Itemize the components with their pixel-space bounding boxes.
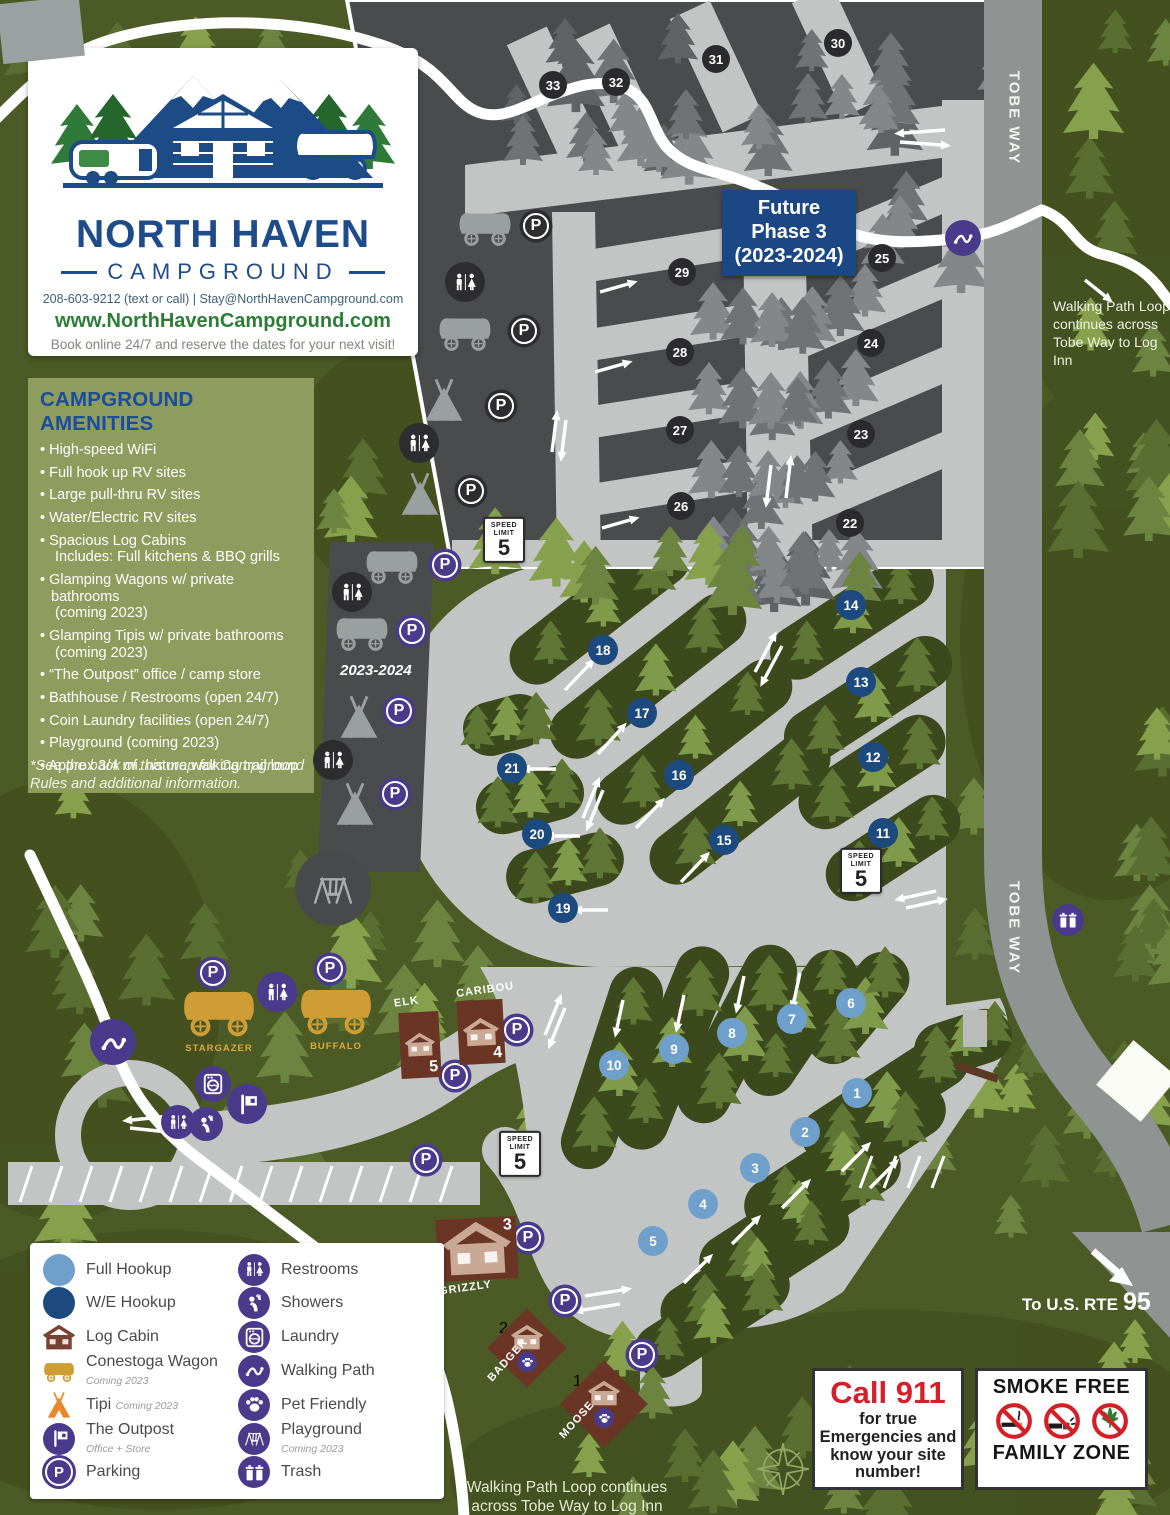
- legend-label: Log Cabin: [86, 1328, 159, 1345]
- site-marker-32: 32: [602, 68, 630, 96]
- parking-icon: P: [504, 1017, 530, 1043]
- site-marker-10: 10: [599, 1050, 629, 1080]
- legend-item-tipi: Tipi Coming 2023: [42, 1388, 237, 1421]
- legend-label: Parking: [86, 1463, 140, 1480]
- pet-friendly-icon: [594, 1408, 614, 1428]
- site-marker-27: 27: [666, 416, 694, 444]
- site-marker-5: 5: [638, 1226, 668, 1256]
- map-legend: Full Hookup W/E Hookup Log Cabin Conesto…: [30, 1243, 444, 1499]
- legend-sub: Coming 2023: [86, 1375, 148, 1387]
- amenity-item: • Spacious Log CabinsIncludes: Full kitc…: [40, 533, 302, 566]
- emergency-notice: Call 911 for true Emergencies and know y…: [812, 1368, 964, 1490]
- site-marker-24: 24: [857, 329, 885, 357]
- future-phase-label: Future Phase 3 (2023-2024): [722, 190, 856, 276]
- legend-item-w-e-hookup: W/E Hookup: [42, 1287, 237, 1320]
- site-marker-1: 1: [842, 1078, 872, 1108]
- speed-limit-sign: SPEEDLIMIT5: [840, 848, 882, 894]
- site-marker-2: 2: [790, 1117, 820, 1147]
- outpost-building: [0, 0, 85, 64]
- laundry-icon: [195, 1066, 231, 1102]
- legend-label: W/E Hookup: [86, 1294, 176, 1311]
- site-marker-18: 18: [588, 635, 618, 665]
- site-marker-4: 4: [688, 1189, 718, 1219]
- site-marker-20: 20: [522, 819, 552, 849]
- cabin-number: 3: [502, 1216, 512, 1234]
- site-marker-7: 7: [777, 1004, 807, 1034]
- call-911-body: for true Emergencies and know your site …: [815, 1411, 961, 1482]
- legend-sub: Coming 2023: [281, 1443, 343, 1455]
- trash-icon: [238, 1456, 270, 1488]
- legend-label: Conestoga Wagon: [86, 1353, 218, 1370]
- site-marker-13: 13: [846, 667, 876, 697]
- parking-icon: P: [399, 618, 425, 644]
- speed-limit-sign: SPEEDLIMIT5: [483, 517, 525, 563]
- squig-glyph: [952, 227, 974, 249]
- legend-item-conestoga-wagon: Conestoga WagonComing 2023: [42, 1354, 237, 1387]
- site-marker-9: 9: [659, 1034, 689, 1064]
- we-hookup-icon: [43, 1287, 75, 1319]
- site-marker-17: 17: [627, 698, 657, 728]
- amenity-item-sub: (coming 2023): [51, 605, 302, 622]
- site-marker-33: 33: [539, 71, 567, 99]
- legend-label: Restrooms: [281, 1261, 358, 1278]
- wagon-label: BUFFALO: [292, 1041, 380, 1052]
- legend-label: Playground: [281, 1421, 362, 1438]
- compass-rose-icon: [752, 1438, 814, 1500]
- legend-item-pet-friendly: Pet Friendly: [237, 1388, 432, 1421]
- site-marker-29: 29: [668, 258, 696, 286]
- showers-icon: [189, 1107, 223, 1141]
- amenity-item: • Glamping Tipis w/ private bathrooms(co…: [40, 628, 302, 661]
- paw-glyph: [598, 1412, 611, 1425]
- conestoga-wagon-icon: [42, 1358, 76, 1384]
- no-cigarette-icon: [994, 1401, 1034, 1441]
- legend-column-left: Full Hookup W/E Hookup Log Cabin Conesto…: [42, 1253, 237, 1489]
- website-url: www.NorthHavenCampground.com: [28, 310, 418, 333]
- amenity-item-sub: Includes: Full kitchens & BBQ grills: [51, 549, 302, 566]
- trash-icon: [1052, 904, 1084, 936]
- parking-icon: P: [432, 552, 458, 578]
- amenity-item-sub: (coming 2023): [51, 645, 302, 662]
- wc-glyph: [265, 980, 290, 1005]
- parking-icon: P: [523, 213, 549, 239]
- wc-glyph: [168, 1112, 189, 1133]
- restrooms-icon: [238, 1254, 270, 1286]
- brand-title: NORTH HAVEN: [28, 213, 418, 257]
- log-cabin-icon: [42, 1323, 76, 1352]
- amenities-footnote: *See the back of this map for Campground…: [30, 757, 310, 793]
- site-marker-23: 23: [847, 420, 875, 448]
- campground-map-poster: NORTH HAVEN CAMPGROUND 208-603-9212 (tex…: [0, 0, 1170, 1515]
- site-marker-8: 8: [717, 1018, 747, 1048]
- legend-item-log-cabin: Log Cabin: [42, 1321, 237, 1354]
- amenity-item: • Bathhouse / Restrooms (open 24/7): [40, 690, 302, 707]
- legend-sub: Coming 2023: [116, 1400, 178, 1412]
- full-hookup-icon: [43, 1254, 75, 1286]
- walkpath-icon: [90, 1019, 136, 1065]
- wc-glyph: [407, 431, 432, 456]
- amenity-item: • Coin Laundry facilities (open 24/7): [40, 713, 302, 730]
- route-95-arrow-icon: [1085, 1245, 1145, 1295]
- phase-strip-year-label: 2023-2024: [340, 662, 412, 679]
- legend-label: The Outpost: [86, 1421, 174, 1438]
- legend-item-parking: P Parking: [42, 1456, 237, 1489]
- site-marker-3: 3: [740, 1153, 770, 1183]
- walkpath-icon: [238, 1355, 270, 1387]
- legend-label: Full Hookup: [86, 1261, 171, 1278]
- wagon-icon: [179, 984, 259, 1037]
- paw-icon: [238, 1389, 270, 1421]
- wc-glyph: [321, 748, 346, 773]
- parking-icon: P: [442, 1063, 468, 1089]
- tipi-icon: [45, 1391, 73, 1419]
- legend-item-laundry: Laundry: [237, 1321, 432, 1354]
- parking-icon: P: [488, 393, 514, 419]
- outpost-icon: [43, 1423, 75, 1455]
- booking-tagline: Book online 24/7 and reserve the dates f…: [28, 337, 418, 352]
- site-marker-12: 12: [858, 742, 888, 772]
- speed-limit-sign: SPEEDLIMIT5: [499, 1131, 541, 1177]
- amenity-item: • Water/Electric RV sites: [40, 510, 302, 527]
- legend-item-trash: Trash: [237, 1456, 432, 1489]
- legend-column-right: Restrooms Showers Laundry Walking Path P…: [237, 1253, 432, 1489]
- cabin-icon: [403, 1031, 436, 1058]
- wc-glyph: [340, 580, 365, 605]
- no-vaping-icon: [1042, 1401, 1082, 1441]
- site-marker-21: 21: [497, 753, 527, 783]
- legend-label: Trash: [281, 1463, 321, 1480]
- legend-item-the-outpost: The OutpostOffice + Store: [42, 1422, 237, 1455]
- playground-icon: [238, 1423, 270, 1455]
- site-marker-30: 30: [824, 29, 852, 57]
- parking-icon: P: [382, 781, 408, 807]
- parking-icon: P: [629, 1342, 655, 1368]
- cabin-caribou: 4: [456, 999, 505, 1065]
- site-marker-6: 6: [836, 988, 866, 1018]
- amenity-item: • Large pull-thru RV sites: [40, 487, 302, 504]
- cabin-elk: 5: [398, 1011, 441, 1079]
- wagon-label: STARGAZER: [175, 1043, 263, 1054]
- subtitle-dash-right: [349, 271, 385, 274]
- site-marker-14: 14: [836, 590, 866, 620]
- parking-icon: P: [413, 1147, 439, 1173]
- laundryS-glyph: [202, 1073, 224, 1095]
- legend-item-playground: PlaygroundComing 2023: [237, 1422, 432, 1455]
- showerS-glyph: [196, 1114, 217, 1135]
- site-marker-25: 25: [868, 244, 896, 272]
- smoke-free-notice: SMOKE FREE: [975, 1368, 1148, 1490]
- legend-label: Walking Path: [281, 1362, 375, 1379]
- laundry-icon: [238, 1321, 270, 1353]
- paw-glyph: [521, 1356, 534, 1369]
- restrooms-icon: [313, 740, 353, 780]
- site-marker-11: 11: [868, 818, 898, 848]
- wagon-icon: [296, 982, 376, 1035]
- site-marker-15: 15: [709, 825, 739, 855]
- wc-glyph: [453, 270, 478, 295]
- legend-item-full-hookup: Full Hookup: [42, 1253, 237, 1286]
- amenity-item: • Full hook up RV sites: [40, 465, 302, 482]
- glamping-wagon-stargazer: STARGAZER: [175, 984, 263, 1054]
- site-marker-28: 28: [666, 338, 694, 366]
- flagS-glyph: [235, 1092, 260, 1117]
- amenity-item: • High-speed WiFi: [40, 442, 302, 459]
- no-smoking-icons: [978, 1401, 1145, 1441]
- amenity-item: • Glamping Wagons w/ private bathrooms(c…: [40, 572, 302, 622]
- restrooms-icon: [332, 572, 372, 612]
- legend-label: Tipi: [86, 1396, 111, 1413]
- amenity-item: • “The Outpost” office / camp store: [40, 667, 302, 684]
- showers-icon: [238, 1287, 270, 1319]
- brand-logo-illustration: [43, 56, 403, 206]
- no-cannabis-icon: [1090, 1401, 1130, 1441]
- subtitle-dash-left: [61, 271, 97, 274]
- parking-icon: P: [458, 478, 484, 504]
- trashS-glyph: [1058, 910, 1078, 930]
- amenities-list: • High-speed WiFi• Full hook up RV sites…: [40, 442, 302, 775]
- amenities-panel: CAMPGROUND AMENITIES • High-speed WiFi• …: [28, 378, 314, 793]
- outpost-icon: [227, 1084, 267, 1124]
- site-marker-22: 22: [836, 509, 864, 537]
- parking-icon: P: [200, 960, 226, 986]
- parking-icon: P: [552, 1288, 578, 1314]
- parking-icon: P: [386, 698, 412, 724]
- cabin-number: 4: [493, 1044, 503, 1062]
- squig-glyph: [99, 1028, 128, 1057]
- legend-item-restrooms: Restrooms: [237, 1253, 432, 1286]
- parking-icon: P: [515, 1225, 541, 1251]
- restrooms-icon: [257, 972, 297, 1012]
- parking-icon: P: [317, 956, 343, 982]
- brand-card: NORTH HAVEN CAMPGROUND 208-603-9212 (tex…: [28, 48, 418, 356]
- cabin-grizzly: 3: [435, 1216, 518, 1282]
- site-marker-26: 26: [667, 492, 695, 520]
- glamping-wagon-buffalo: BUFFALO: [292, 982, 380, 1052]
- road-label-tobe-way-bottom: TOBE WAY: [1006, 881, 1023, 975]
- site-marker-19: 19: [548, 893, 578, 923]
- legend-label: Showers: [281, 1294, 343, 1311]
- site-marker-31: 31: [702, 45, 730, 73]
- legend-label: Laundry: [281, 1328, 339, 1345]
- parking-icon: P: [511, 318, 537, 344]
- legend-label: Pet Friendly: [281, 1396, 366, 1413]
- cabin-number: 5: [429, 1058, 439, 1076]
- legend-sub: Office + Store: [86, 1443, 151, 1455]
- amenity-item: • Playground (coming 2023): [40, 735, 302, 752]
- restrooms-icon: [399, 423, 439, 463]
- legend-item-showers: Showers: [237, 1287, 432, 1320]
- brand-subtitle: CAMPGROUND: [28, 259, 418, 285]
- restrooms-icon: [445, 262, 485, 302]
- walkpath-icon: [945, 220, 981, 256]
- contact-line: 208-603-9212 (text or call) | Stay@North…: [28, 292, 418, 306]
- walking-path-note-bottom: Walking Path Loop continues across Tobe …: [452, 1478, 682, 1515]
- road-label-tobe-way-top: TOBE WAY: [1006, 71, 1023, 165]
- site-marker-16: 16: [664, 760, 694, 790]
- amenities-title: CAMPGROUND AMENITIES: [40, 388, 302, 436]
- legend-item-walking-path: Walking Path: [237, 1354, 432, 1387]
- call-911-title: Call 911: [815, 1377, 961, 1408]
- walking-path-note-right: Walking Path Loop continues across Tobe …: [1053, 298, 1170, 370]
